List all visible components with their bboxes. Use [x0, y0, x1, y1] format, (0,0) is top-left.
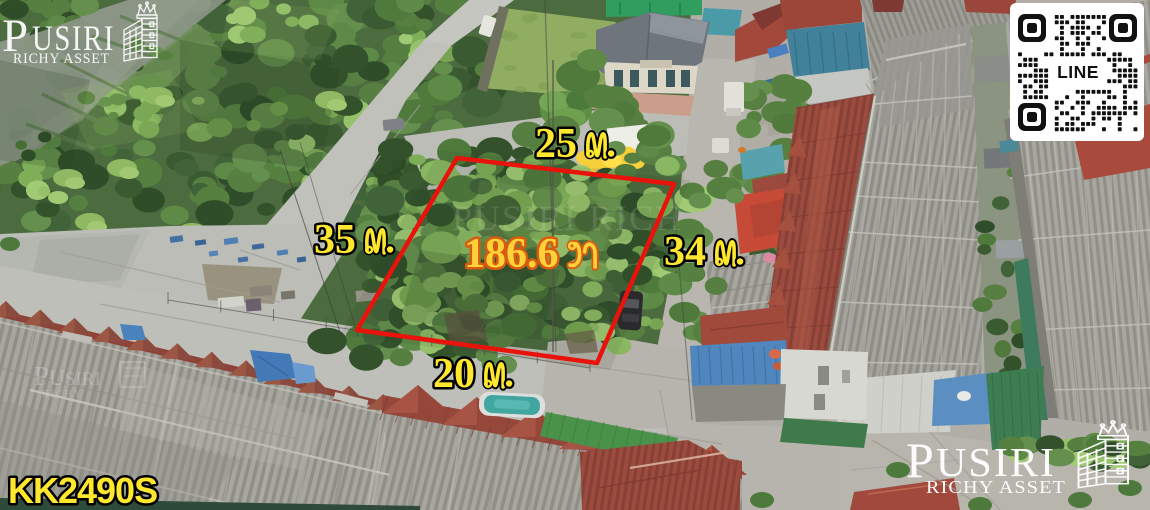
svg-text:RICHY ASSET: RICHY ASSET: [926, 477, 1066, 497]
svg-text:LINE: LINE: [1057, 62, 1099, 82]
svg-text:RICHY: RICHY: [42, 389, 83, 400]
svg-text:35: 35: [314, 217, 356, 263]
svg-text:KK2490S: KK2490S: [8, 470, 157, 510]
svg-text:25: 25: [535, 121, 577, 167]
svg-text:34: 34: [664, 229, 706, 275]
svg-text:20: 20: [433, 351, 475, 397]
svg-text:RICHY ASSET: RICHY ASSET: [13, 51, 110, 67]
svg-text:186.6: 186.6: [464, 231, 559, 277]
